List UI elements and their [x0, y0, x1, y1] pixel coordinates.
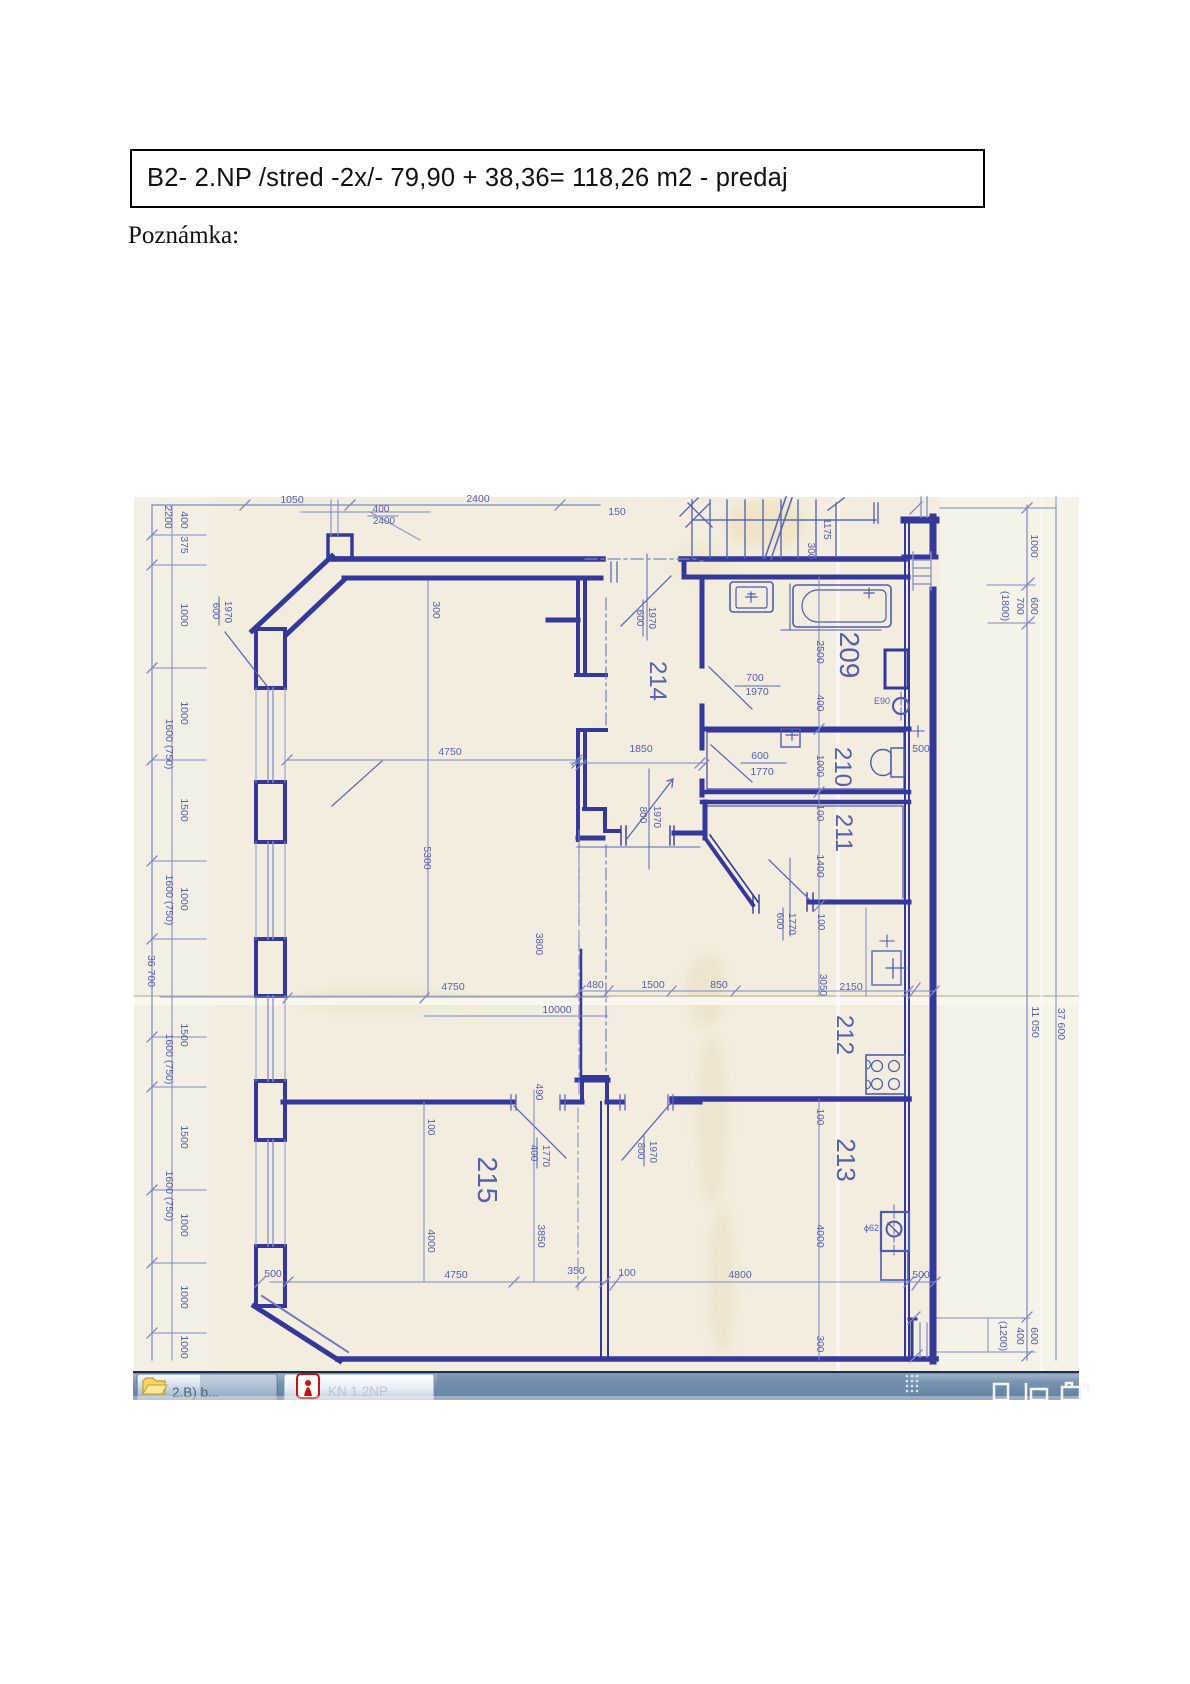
svg-text:1000: 1000 — [814, 755, 825, 778]
svg-text:4000: 4000 — [814, 1224, 826, 1248]
svg-text:1600 (750): 1600 (750) — [163, 719, 175, 770]
svg-text:36 700: 36 700 — [145, 955, 157, 987]
svg-text:1970: 1970 — [651, 806, 662, 829]
svg-text:300: 300 — [430, 601, 442, 619]
svg-text:1770: 1770 — [540, 1145, 551, 1168]
svg-text:(1200): (1200) — [997, 1321, 1009, 1351]
svg-text:4800: 4800 — [728, 1269, 752, 1281]
svg-text:400: 400 — [528, 1145, 539, 1162]
svg-text:300: 300 — [814, 1336, 825, 1353]
svg-text:212: 212 — [831, 1015, 858, 1055]
svg-text:400: 400 — [1014, 1327, 1026, 1345]
svg-text:213: 213 — [831, 1138, 861, 1181]
svg-text:500: 500 — [264, 1268, 282, 1280]
svg-text:1600 (750): 1600 (750) — [163, 875, 175, 926]
svg-text:5300: 5300 — [421, 846, 433, 870]
svg-text:1970: 1970 — [646, 607, 657, 630]
svg-text:1175: 1175 — [821, 518, 832, 540]
svg-text:214: 214 — [644, 661, 671, 701]
svg-text:1970: 1970 — [222, 601, 233, 624]
svg-text:1400: 1400 — [814, 854, 826, 878]
svg-text:800: 800 — [637, 807, 648, 824]
svg-text:1000: 1000 — [178, 701, 190, 725]
svg-text:600: 600 — [634, 610, 645, 627]
svg-text:500: 500 — [912, 743, 930, 755]
svg-text:1000: 1000 — [178, 1335, 190, 1359]
svg-text:4750: 4750 — [444, 1269, 468, 1281]
svg-text:2400: 2400 — [373, 516, 396, 527]
svg-text:1000: 1000 — [178, 603, 190, 627]
svg-text:500: 500 — [912, 1269, 930, 1281]
svg-text:100: 100 — [815, 914, 826, 931]
svg-text:1500: 1500 — [178, 1125, 190, 1149]
svg-text:E90: E90 — [874, 696, 890, 706]
svg-text:490: 490 — [533, 1084, 544, 1101]
svg-text:400: 400 — [814, 695, 825, 712]
svg-text:2200: 2200 — [162, 505, 174, 529]
svg-text:300: 300 — [805, 543, 816, 560]
svg-text:1500: 1500 — [178, 798, 190, 822]
svg-text:150: 150 — [608, 506, 626, 518]
svg-text:1770: 1770 — [786, 913, 797, 936]
svg-text:1050: 1050 — [280, 494, 304, 506]
svg-text:3800: 3800 — [533, 933, 544, 956]
svg-text:1770: 1770 — [750, 766, 774, 778]
svg-text:100: 100 — [814, 1109, 825, 1126]
svg-text:(1800): (1800) — [999, 591, 1011, 621]
svg-text:600: 600 — [1028, 1327, 1040, 1345]
svg-text:100: 100 — [425, 1119, 436, 1136]
svg-text:350: 350 — [567, 1265, 585, 1277]
svg-text:211: 211 — [830, 814, 857, 852]
svg-text:2500: 2500 — [814, 640, 826, 664]
svg-text:700: 700 — [1014, 597, 1026, 615]
svg-text:ϕ62: ϕ62 — [864, 1223, 879, 1233]
svg-text:600: 600 — [210, 603, 221, 620]
svg-text:209: 209 — [834, 632, 865, 679]
svg-text:1500: 1500 — [178, 1023, 190, 1047]
svg-text:37 600: 37 600 — [1055, 1008, 1067, 1040]
svg-text:210: 210 — [829, 747, 856, 787]
svg-text:11 050: 11 050 — [1029, 1006, 1041, 1037]
svg-text:3050: 3050 — [817, 974, 828, 997]
svg-text:1970: 1970 — [745, 686, 769, 698]
svg-text:1970: 1970 — [647, 1141, 658, 1164]
svg-text:1850: 1850 — [629, 743, 653, 755]
svg-text:100: 100 — [618, 1267, 636, 1279]
svg-text:480: 480 — [586, 979, 604, 991]
svg-text:1500: 1500 — [641, 979, 665, 991]
svg-text:400: 400 — [178, 511, 190, 529]
svg-text:1000: 1000 — [178, 1285, 190, 1309]
svg-text:400: 400 — [373, 504, 390, 515]
svg-text:3850: 3850 — [535, 1224, 547, 1248]
svg-text:100: 100 — [814, 805, 825, 822]
svg-text:1000: 1000 — [1028, 534, 1040, 558]
svg-text:10000: 10000 — [542, 1004, 571, 1016]
svg-text:600: 600 — [751, 750, 769, 762]
svg-text:800: 800 — [635, 1143, 646, 1160]
svg-text:1600 (750): 1600 (750) — [163, 1034, 175, 1085]
svg-text:600: 600 — [1028, 597, 1040, 615]
svg-text:1600 (750): 1600 (750) — [163, 1171, 175, 1222]
svg-text:4750: 4750 — [441, 981, 465, 993]
svg-text:4750: 4750 — [438, 746, 462, 758]
svg-text:700: 700 — [746, 672, 764, 684]
svg-text:850: 850 — [710, 979, 728, 991]
svg-text:4000: 4000 — [425, 1229, 437, 1253]
svg-text:1000: 1000 — [178, 887, 190, 911]
svg-text:215: 215 — [472, 1157, 503, 1204]
svg-text:2400: 2400 — [466, 493, 490, 505]
svg-text:375: 375 — [178, 536, 190, 554]
svg-text:2150: 2150 — [839, 981, 863, 993]
svg-text:1000: 1000 — [178, 1213, 190, 1237]
svg-text:600: 600 — [774, 913, 785, 930]
